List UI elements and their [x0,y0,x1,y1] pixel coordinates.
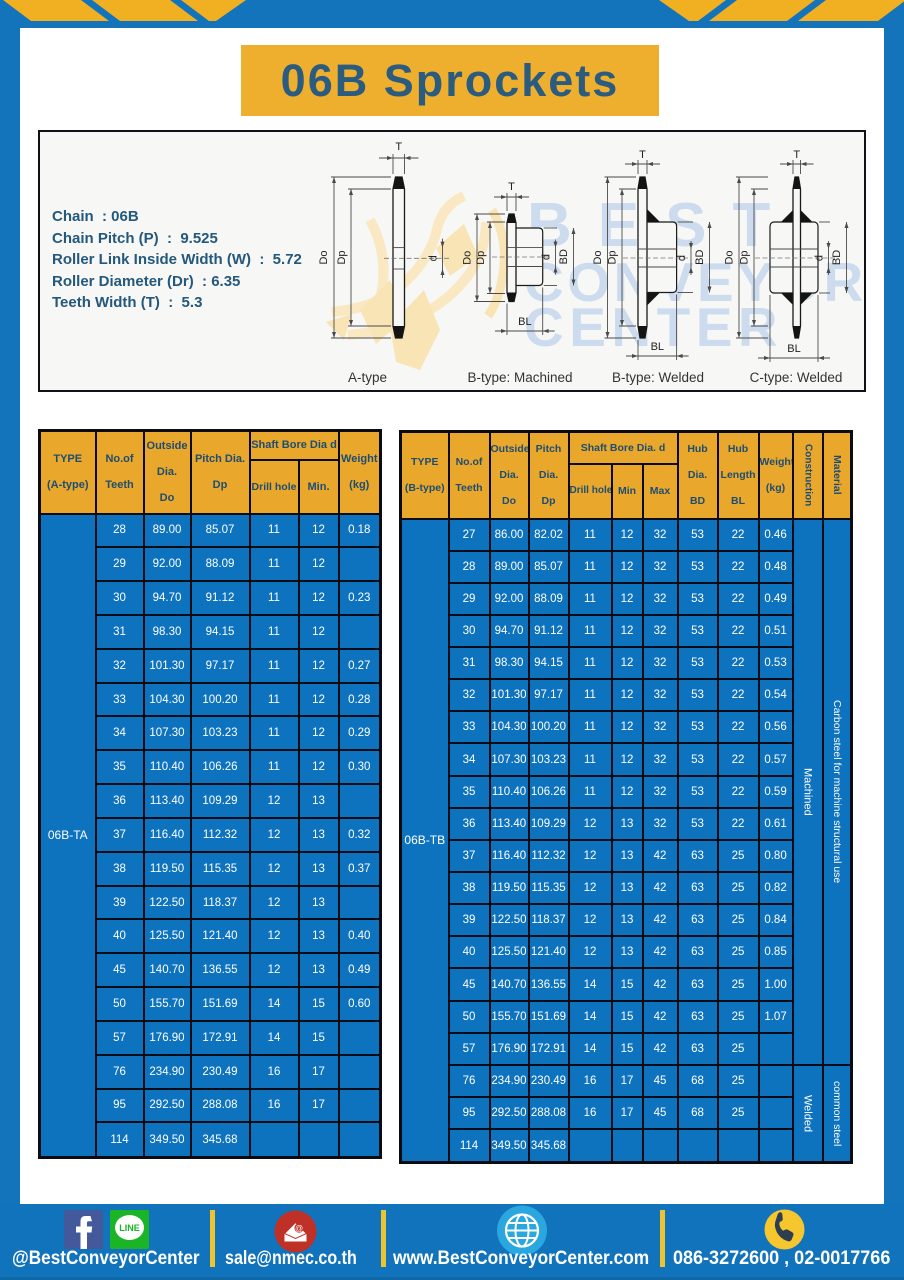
svg-text:d: d [676,255,688,261]
svg-text:Do: Do [318,250,330,264]
svg-text:T: T [395,141,402,153]
svg-text:T: T [508,181,515,193]
svg-text:d: d [428,255,440,261]
svg-text:d: d [814,255,826,261]
svg-text:Dp: Dp [739,250,751,264]
svg-text:Dp: Dp [607,250,619,264]
svg-text:BL: BL [787,343,800,355]
svg-text:BL: BL [518,316,531,328]
svg-text:A-type: A-type [348,370,387,385]
svg-text:BD: BD [558,249,570,264]
svg-text:T: T [793,149,800,161]
svg-text:B-type: Welded: B-type: Welded [612,370,704,385]
svg-text:Do: Do [462,251,474,265]
svg-text:@: @ [295,1224,303,1233]
svg-text:Do: Do [724,250,736,264]
svg-text:BD: BD [694,250,706,265]
svg-text:BL: BL [651,341,664,353]
svg-text:d: d [541,254,553,260]
svg-text:C-type: Welded: C-type: Welded [750,370,843,385]
svg-text:T: T [639,149,646,161]
svg-text:Do: Do [592,250,604,264]
svg-text:Dp: Dp [336,250,348,264]
svg-text:LINE: LINE [119,1223,140,1233]
svg-text:B-type: Machined: B-type: Machined [467,370,572,385]
svg-text:BD: BD [831,250,843,265]
svg-text:Dp: Dp [475,251,487,265]
